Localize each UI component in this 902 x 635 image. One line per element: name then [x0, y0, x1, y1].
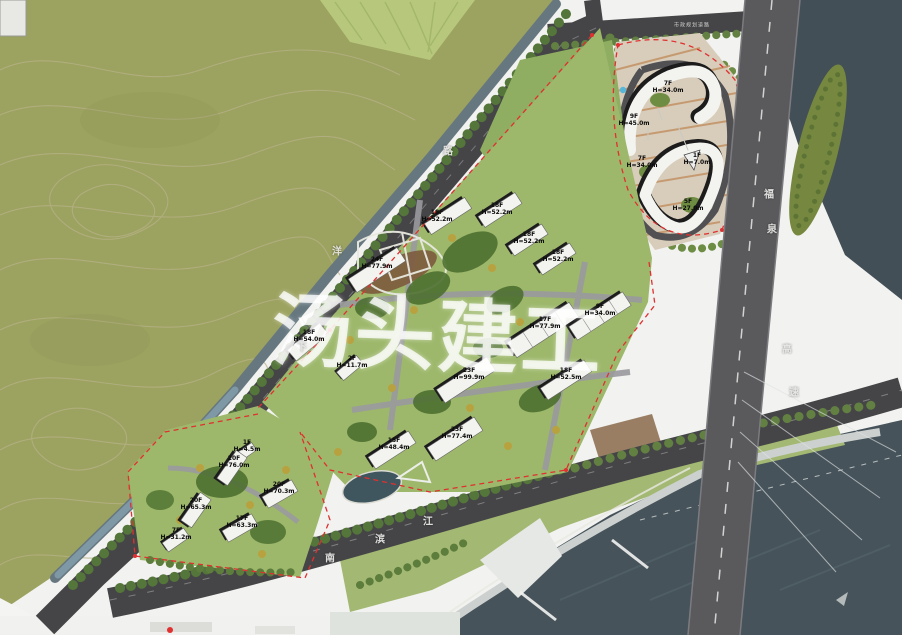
corner-structure [0, 0, 26, 36]
top-road [548, 20, 765, 34]
master-plan-screenshot: 汤头建工 7FH=34.0m 9FH=45.0m 7FH=34.0m 1FH=7… [0, 0, 902, 635]
site-plan-canvas [0, 0, 902, 635]
pool [620, 87, 626, 93]
